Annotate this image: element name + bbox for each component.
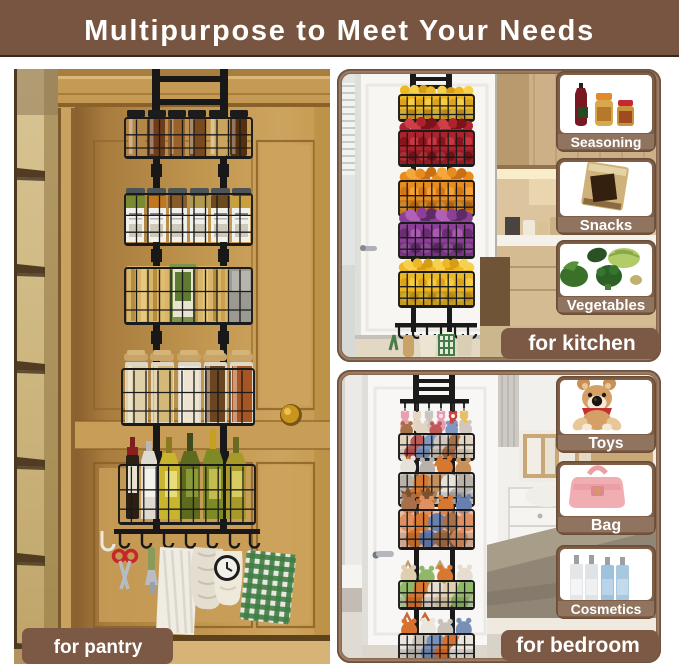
- svg-text:Snacks: Snacks: [580, 217, 633, 234]
- svg-text:for pantry: for pantry: [54, 637, 143, 658]
- svg-text:Bag: Bag: [591, 517, 621, 534]
- svg-text:Vegetables: Vegetables: [567, 297, 645, 314]
- svg-text:Seasoning: Seasoning: [571, 134, 642, 150]
- svg-text:for bedroom: for bedroom: [516, 634, 640, 657]
- svg-text:Cosmetics: Cosmetics: [571, 601, 642, 617]
- svg-text:for kitchen: for kitchen: [528, 332, 635, 355]
- svg-text:Toys: Toys: [588, 435, 623, 452]
